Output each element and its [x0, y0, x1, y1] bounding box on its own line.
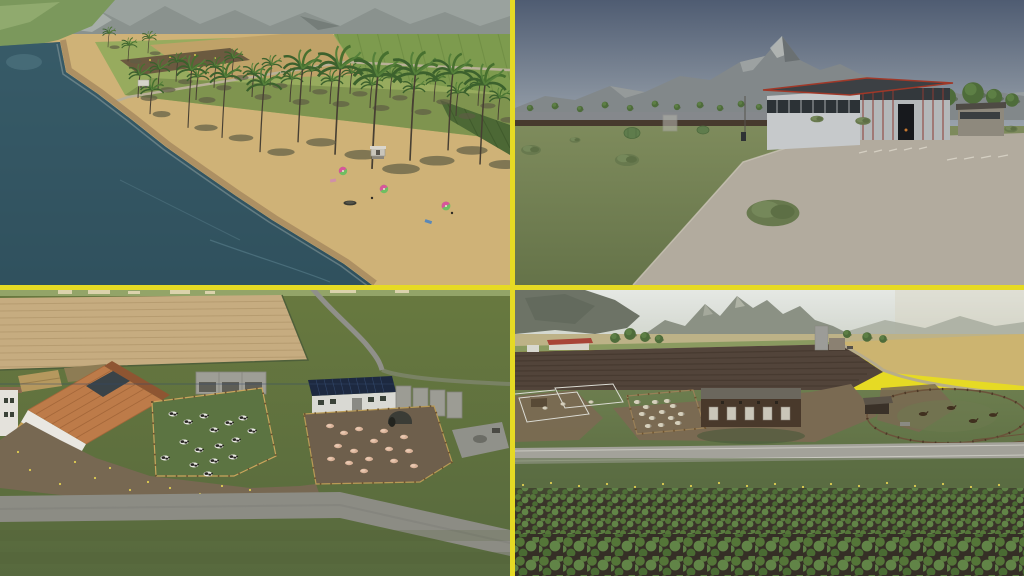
storage-rack: [663, 115, 677, 131]
livestock-farm-illustration: [0, 290, 510, 576]
crop-field: [515, 488, 1024, 576]
lifeguard-tower: [370, 146, 386, 159]
farmyard-illustration: [515, 0, 1024, 285]
annex-building: [958, 106, 1004, 136]
rowing-boat: [344, 201, 357, 206]
beach-illustration: [0, 0, 510, 285]
panel-farmyard: [515, 0, 1024, 285]
horizon-town: [0, 290, 510, 296]
collage: [0, 0, 1024, 576]
panel-pastures: [515, 290, 1024, 576]
panel-livestock-farm: [0, 290, 510, 576]
panel-beach: [0, 0, 510, 285]
pig-pen: [304, 406, 452, 484]
roadside-grass: [515, 458, 1024, 488]
pastures-illustration: [515, 290, 1024, 576]
plowed-field: [0, 295, 308, 370]
pen-shelter: [530, 397, 548, 407]
sheep-barn: [697, 388, 805, 444]
